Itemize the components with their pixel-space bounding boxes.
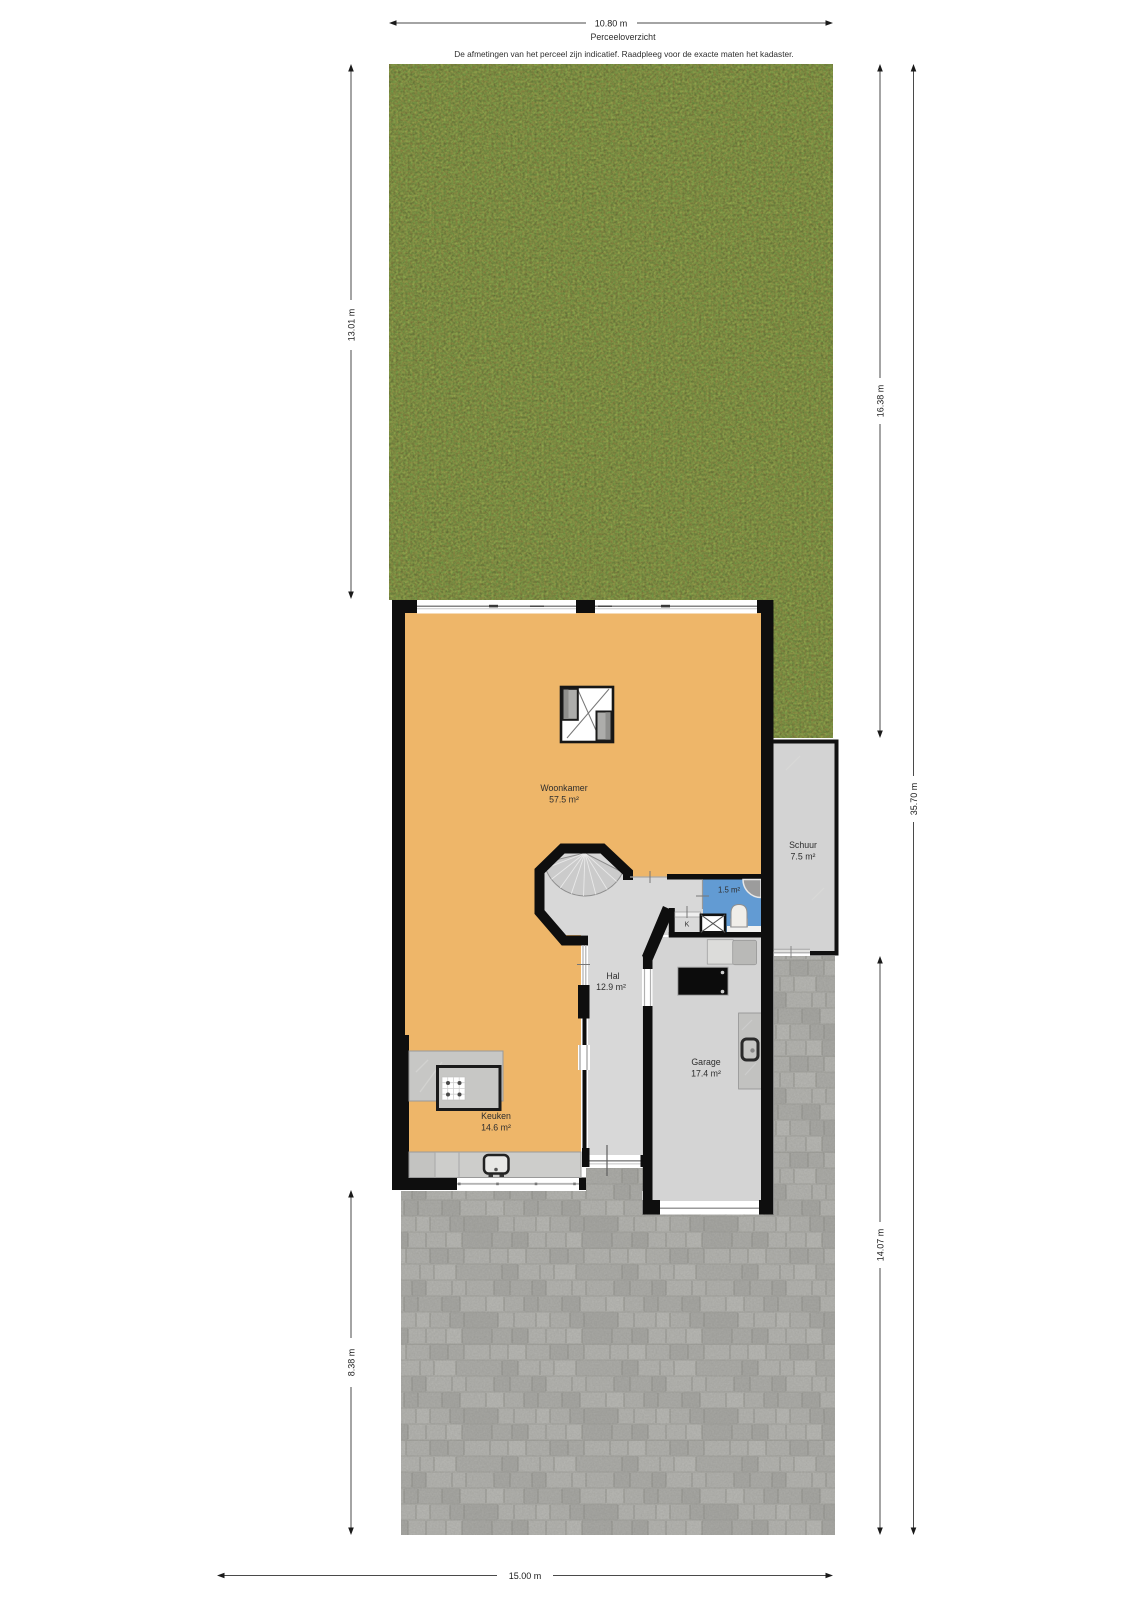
svg-text:Garage: Garage	[691, 1057, 720, 1067]
svg-text:13.01 m: 13.01 m	[347, 309, 357, 342]
svg-text:1.5 m²: 1.5 m²	[718, 886, 740, 895]
svg-text:7.5 m²: 7.5 m²	[791, 852, 816, 862]
svg-text:14.6 m²: 14.6 m²	[481, 1123, 511, 1133]
svg-text:57.5 m²: 57.5 m²	[549, 795, 579, 805]
svg-text:De afmetingen van het perceel: De afmetingen van het perceel zijn indic…	[454, 49, 793, 59]
svg-text:Keuken: Keuken	[481, 1111, 511, 1121]
svg-text:15.00 m: 15.00 m	[509, 1571, 542, 1581]
svg-text:Perceeloverzicht: Perceeloverzicht	[590, 32, 656, 42]
svg-text:K: K	[685, 922, 690, 929]
svg-text:8.38 m: 8.38 m	[347, 1349, 357, 1377]
svg-text:17.4 m²: 17.4 m²	[691, 1069, 721, 1079]
svg-text:35.70 m: 35.70 m	[909, 783, 919, 816]
svg-text:12.9 m²: 12.9 m²	[596, 982, 626, 992]
svg-text:16.38 m: 16.38 m	[876, 385, 886, 418]
svg-text:Woonkamer: Woonkamer	[540, 783, 587, 793]
svg-text:14.07 m: 14.07 m	[876, 1229, 886, 1262]
svg-text:Schuur: Schuur	[789, 840, 817, 850]
svg-text:10.80 m: 10.80 m	[595, 19, 628, 29]
svg-text:Hal: Hal	[606, 971, 619, 981]
